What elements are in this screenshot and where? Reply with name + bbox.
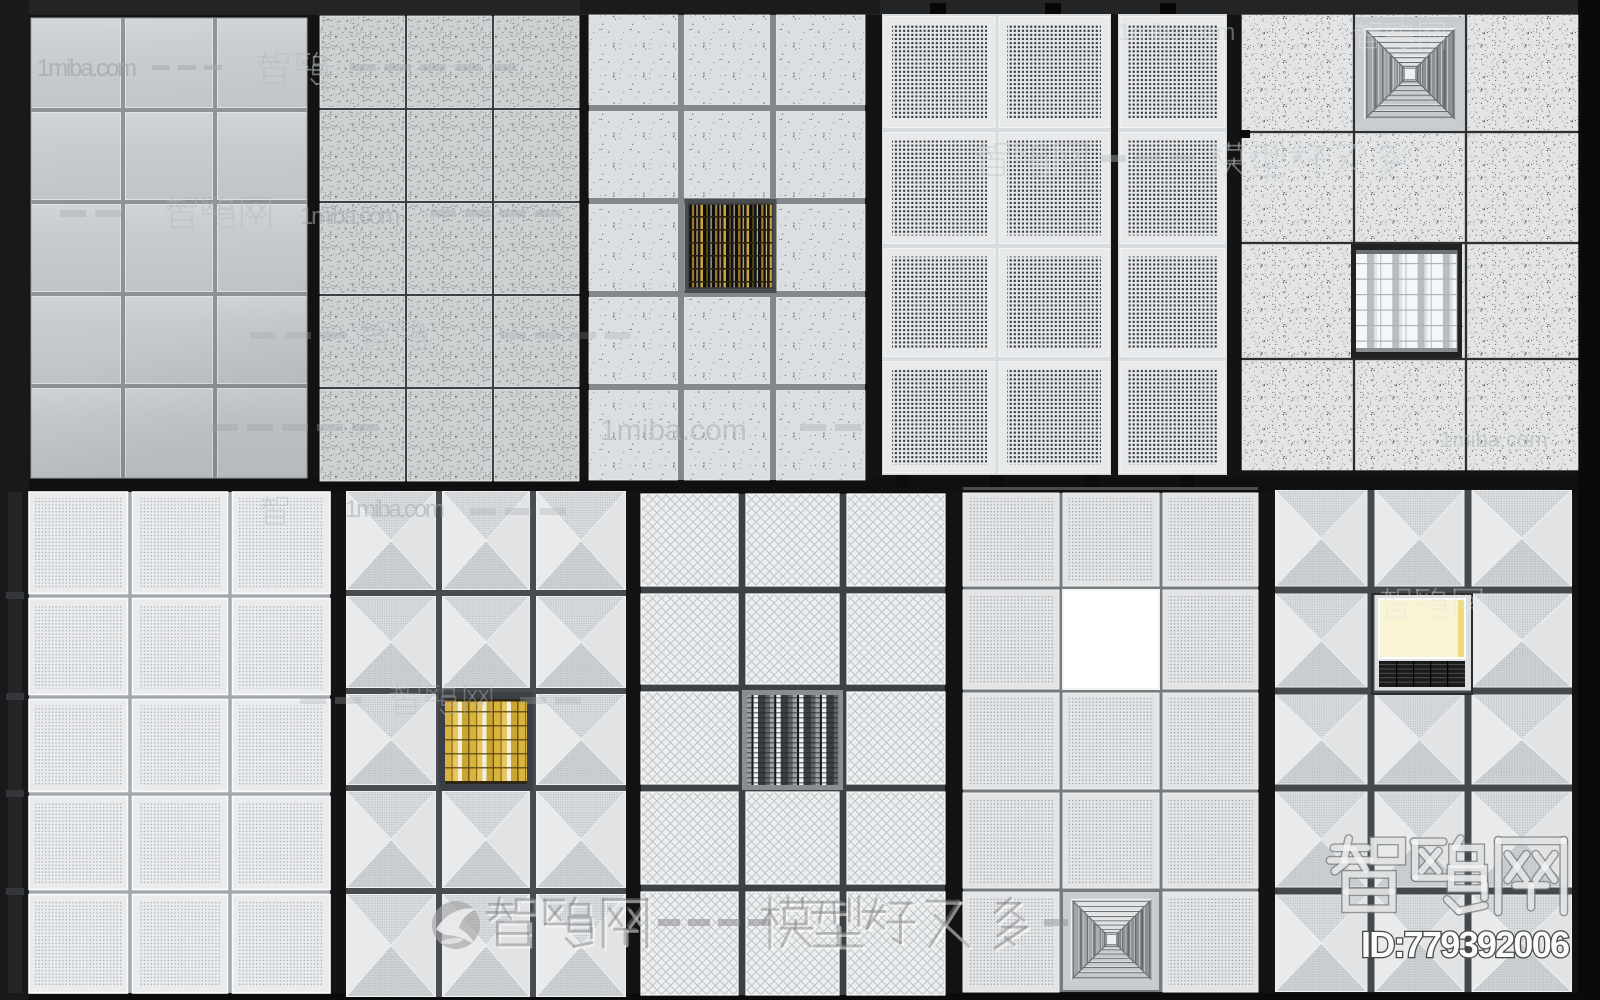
svg-text:1miba.com: 1miba.com [600,414,747,447]
svg-text:1miba.com: 1miba.com [345,496,445,523]
svg-text:1miba.com: 1miba.com [37,55,137,82]
svg-text:1miba.com: 1miba.com [1440,427,1548,452]
svg-text:1miba.com: 1miba.com [1118,19,1235,46]
svg-text:1miba.com: 1miba.com [300,203,400,230]
svg-text:ID:779392006: ID:779392006 [1361,924,1570,965]
